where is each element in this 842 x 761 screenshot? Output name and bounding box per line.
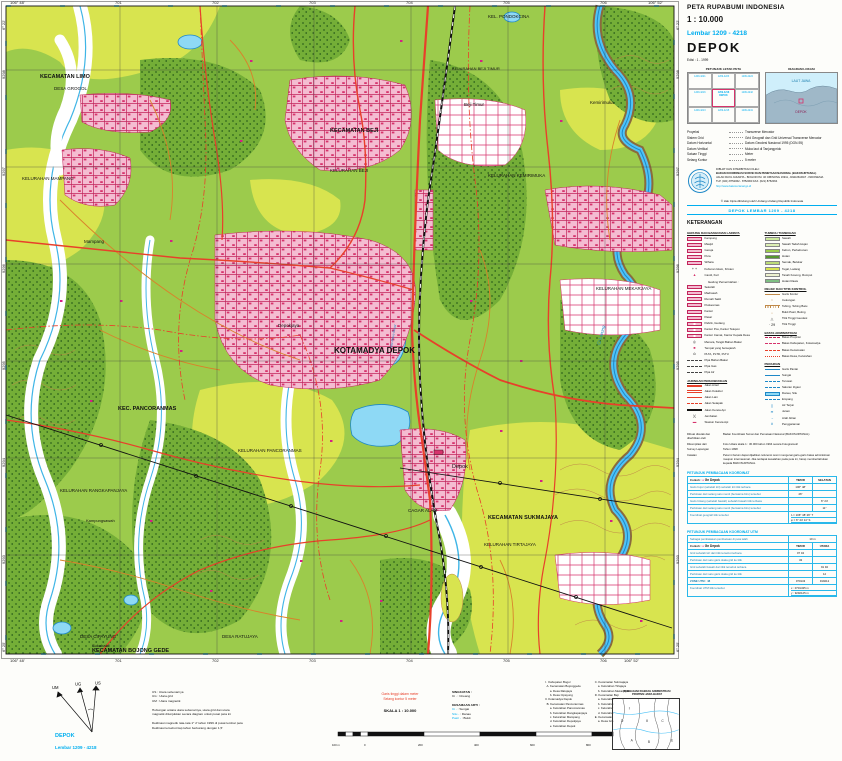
- source-note-label: Catatan: [687, 453, 723, 465]
- us-label: US: [95, 681, 101, 686]
- row-label: Grid sebelah bawah dari titik tersebut t…: [688, 564, 788, 570]
- locator-cell-number: 1209-4224: [736, 76, 758, 79]
- map-label: KELURAHAN RANGKAPANJAYA: [60, 488, 127, 493]
- projection-label: Proyeksi: [687, 130, 729, 134]
- legend-symbol: [765, 381, 780, 382]
- projection-value: Datum Geodesi Nasional 1995 (DGN-95): [745, 141, 837, 145]
- projection-label: Datum Vertikal: [687, 147, 729, 151]
- legend-symbol: ○: [765, 298, 780, 302]
- legend-symbol: ▬: [687, 420, 702, 424]
- grid-easting-top: 703: [309, 0, 316, 5]
- grid-northing-left: 9298: [1, 70, 6, 79]
- legend-symbol: [687, 366, 702, 367]
- projection-row: Selang Kontur5 meter: [687, 158, 837, 162]
- legend-symbol: [765, 255, 780, 259]
- legend-label: Tebing, Tebing Batu: [782, 305, 807, 308]
- legend-label: Kantor Pos, Kantor Telepon: [705, 328, 740, 331]
- legend-label: Batas Desa, Kelurahan: [782, 355, 812, 358]
- legend-symbol: [687, 328, 702, 332]
- map-label: Kemirimuka: [590, 100, 614, 105]
- legend-symbol: [687, 409, 702, 411]
- map-label: KECAMATAN LIMO: [40, 74, 91, 80]
- legend-label: Wihara: [705, 261, 714, 264]
- legend-label: Pipa Bahan Bakar: [705, 359, 728, 362]
- grid-easting-top: 702: [212, 0, 219, 5]
- sheet-locator: PETUNJUK LETAK PETA 1209-42211209-422312…: [687, 67, 760, 124]
- map-scale: 1 : 10.000: [687, 15, 837, 24]
- projection-row: Sistem GridGrid Geografi dan Grid Univer…: [687, 136, 837, 140]
- source-note-value: Peta ini belum dapat dijadikan referensi…: [723, 453, 837, 465]
- utm-table-title: PETUNJUK PEMBACAAN KOORDINAT UTM: [687, 530, 837, 534]
- legend-symbol: + +: [687, 267, 702, 271]
- locator-cell-number: 1209-4223: [713, 76, 735, 79]
- map-label: KELURAHAN BEJI: [330, 168, 368, 173]
- value-second: 6° 24': [812, 498, 836, 504]
- source-note-value: Foto Udara skala 1 : 30.000 tahun 1994 s…: [723, 442, 837, 446]
- value-second: [812, 491, 836, 497]
- diagram-marker-label: DEPOK: [795, 110, 807, 114]
- publisher-url: http://www.bakosurtanal.go.id: [716, 185, 823, 189]
- legend-label: Titik Tinggi: [782, 323, 796, 326]
- locator-cell: 1209-4218DEPOK: [712, 89, 736, 108]
- legend-symbol: [765, 375, 780, 376]
- legend-symbol: [765, 267, 780, 271]
- legend-label: Terusan: [782, 380, 792, 383]
- example-value: Gn Depok: [705, 544, 720, 548]
- source-note-label: Survey Lapangan: [687, 447, 723, 451]
- kesamaan-meaning: Danau: [462, 712, 471, 716]
- map-label: KECAMATAN BOJONG GEDE: [92, 648, 169, 654]
- grid-easting-bottom: 703: [309, 658, 316, 663]
- grid-easting-bottom: 705: [503, 658, 510, 663]
- admin-col-1: I. Kabupaten Bogor A. Kecamatan Bojongge…: [545, 680, 587, 728]
- row-label: Perkiraan dari selang satu menit (berwar…: [688, 491, 788, 497]
- corner-lon: 106° 48': [10, 0, 25, 5]
- grid-northing-right: 9294: [675, 458, 680, 467]
- table-row: Perkiraan dari satu garis skala grid ke …: [688, 556, 836, 563]
- locator-cell-number: 1209-4242: [736, 92, 758, 95]
- grid-northing-left: 9296: [1, 264, 6, 273]
- value-timur: 26": [788, 491, 812, 497]
- legend-label: Jalan Arteri: [705, 384, 719, 387]
- source-note-label: Dibuat dicetak dan diterbitkan oleh: [687, 432, 723, 440]
- legend-label: Garis Pantai: [782, 368, 798, 371]
- zone-label: ZONE UTM : 48: [688, 578, 788, 584]
- map-label: KELURAHAN MAMPANG: [22, 176, 74, 181]
- sea-label: LAUT JAWA: [792, 79, 811, 83]
- legend-symbol: [765, 273, 780, 277]
- legend-symbol: [687, 310, 702, 314]
- legend-label: Semak, Belukar: [782, 261, 802, 264]
- legend-column-right: TUMBUH TUMBUHANSawahSawah Tadah HujanKeb…: [765, 228, 838, 427]
- projection-row: Datum VertikalMuka laut di Tanjungpriok: [687, 147, 837, 151]
- legend-label: Jalan Lain: [705, 396, 718, 399]
- publisher-block: DIBUAT DAN DITERBITKAN OLEH :BADAN KOORD…: [687, 168, 837, 194]
- abbr-meaning: Cireang: [459, 694, 470, 698]
- legend-symbol: [687, 237, 702, 241]
- corner-lat: 6° 25': [1, 642, 6, 652]
- legend-item: Batas Desa, Kelurahan: [765, 353, 838, 359]
- locator-cell-number: 1209-4221: [689, 76, 711, 79]
- legend-symbol: [687, 316, 702, 320]
- legend: GEDUNG DAN BANGUNAN LAINNYAKampungMasjid…: [687, 228, 837, 427]
- locator-cell: 1209-4242: [735, 89, 759, 108]
- coord-table: Contoh : ● Gn DepokTIMURSELATANGaris buj…: [687, 476, 837, 524]
- source-note-label: Dikompilasi dari: [687, 442, 723, 446]
- locator-cell: 1209-4216: [688, 89, 712, 108]
- legend-label: Jeram: [782, 410, 790, 413]
- legend-label: Stasiun Kereta Api: [705, 421, 729, 424]
- grid-northing-left: 9293: [1, 555, 6, 564]
- map-label: Mampang: [84, 239, 105, 244]
- legend-symbol: [687, 261, 702, 265]
- dotted-leader: [729, 147, 743, 150]
- grid-northing-left: 9295: [1, 361, 6, 370]
- zone-timur: 070143: [788, 578, 812, 584]
- map-label: Depokjaya: [278, 323, 300, 328]
- legend-symbol: [687, 322, 702, 326]
- footer-value: φ = 6° 24' 11" S: [791, 518, 836, 523]
- legend-symbol: [765, 337, 780, 338]
- locator-cell: 1209-4223: [712, 73, 736, 89]
- footer-label: Koordinat geografi titik tersebut: [688, 512, 788, 523]
- table-example: Contoh : ● Gn Depok: [688, 543, 788, 549]
- map-label: KEL. PONDOKCINA: [488, 14, 529, 19]
- dotted-leader: [729, 141, 743, 144]
- legend-symbol: )(: [687, 414, 702, 418]
- legend-symbol: #: [765, 422, 780, 426]
- projection-label: Satuan Tinggi: [687, 152, 729, 156]
- projection-info: ProyeksiTransverse MercatorSistem GridGr…: [687, 130, 837, 162]
- projection-row: Datum HorizontalDatum Geodesi Nasional 1…: [687, 141, 837, 145]
- col-header: TIMUR: [788, 543, 812, 549]
- legend-symbol: [765, 279, 780, 283]
- legend-symbol: [765, 305, 780, 308]
- legend-label: Bukit Pasir, Beting: [782, 311, 805, 314]
- legend-label: Jalan Kereta Api: [705, 409, 726, 412]
- table-footer-row: Koordinat geografi titik tersebutλ = 106…: [688, 511, 836, 523]
- legend-symbol: [765, 356, 780, 357]
- footer-value: y : 9292125 m: [791, 591, 836, 596]
- grid-easting-top: 704: [406, 0, 413, 5]
- legend-symbol: [687, 360, 702, 361]
- legend-symbol: ■: [687, 346, 702, 350]
- admin-list-line: a. Kelurahan Pancoranmas: [545, 706, 587, 710]
- corner-lat: 6° 25': [675, 642, 680, 652]
- marginalia-panel: PETA RUPABUMI INDONESIA 1 : 10.000 Lemba…: [684, 2, 840, 759]
- locator-cell-number: 1209-4215: [713, 110, 735, 113]
- legend-symbol: [687, 249, 702, 253]
- diagram-title: DIAGRAM LOKASI: [765, 67, 838, 71]
- svg-text:I: I: [629, 706, 630, 710]
- legend-label: Garis Kontur: [782, 293, 798, 296]
- map-label: KEC. PANCORANMAS: [118, 406, 177, 412]
- index-maps: PETUNJUK LETAK PETA 1209-42211209-422312…: [687, 67, 837, 124]
- corner-lon: 106° 52': [648, 0, 663, 5]
- locator-cell-number: 1209-4213: [689, 110, 711, 113]
- projection-row: ProyeksiTransverse Mercator: [687, 130, 837, 134]
- legend-label: Candi, Kuil: [705, 274, 719, 277]
- legend-symbol: [765, 399, 780, 400]
- legend-label: Jembatan: [705, 415, 718, 418]
- legend-symbol: [687, 291, 702, 295]
- value-second: 12: [812, 571, 836, 577]
- coord-table-title: PETUNJUK PEMBACAAN KOORDINAT: [687, 471, 837, 475]
- legend-label: Kebun, Perkebunan: [782, 249, 808, 252]
- legend-symbol: ∴: [765, 311, 780, 315]
- legend-label: Empang: [782, 398, 793, 401]
- value-second: 91 92: [812, 564, 836, 570]
- legend-label: Sawah Tadah Hujan: [782, 243, 808, 246]
- legend-item: Hutan Rawa: [765, 278, 838, 284]
- legend-label: Pabrik, Gudang: [705, 322, 725, 325]
- map-label: Depok: [452, 464, 468, 470]
- legend-symbol: ◎: [687, 340, 702, 344]
- legend-label: Tegal, Ladang: [782, 268, 800, 271]
- map-label: DESA CIPAYUNG: [80, 634, 117, 639]
- legend-label: Rumah Sakit: [705, 298, 722, 301]
- projection-value: Muka laut di Tanjungpriok: [745, 147, 837, 151]
- scale-bar-label: 100 m: [332, 743, 340, 747]
- legend-label: Arah Aliran: [782, 417, 796, 420]
- legend-symbol: [687, 372, 702, 373]
- locator-cell: 1209-4215: [712, 107, 736, 123]
- scale-bar-label: 600: [530, 743, 535, 747]
- source-note-row: Dibuat dicetak dan diterbitkan olehBadan…: [687, 432, 837, 440]
- row-label: Perkiraan dari satu garis skala grid ke …: [688, 557, 788, 563]
- legend-label: Sawah: [782, 237, 791, 240]
- grid-easting-bottom: 702: [212, 658, 219, 663]
- corner-lon: 106° 48': [10, 658, 25, 663]
- legend-label: Titik Tinggi Geodesi: [782, 317, 807, 320]
- legend-symbol: △: [765, 317, 780, 321]
- legend-label: Menara, Tangki Bahan Bakar: [705, 341, 742, 344]
- legend-symbol: [687, 334, 702, 338]
- legend-column-left: GEDUNG DAN BANGUNAN LAINNYAKampungMasjid…: [687, 228, 760, 427]
- grid-easting-top: 701: [115, 0, 122, 5]
- table-row: Grid sebelah kiri dari titik tersebut te…: [688, 549, 836, 556]
- legend-label: Masjid: [705, 243, 713, 246]
- legend-symbol: [765, 261, 780, 265]
- edition: Edisi : 1 - 1999: [687, 58, 837, 62]
- publisher-line: TLP. (021) 8752062 - 8752063 FAX. (021) …: [716, 180, 823, 184]
- legend-label: Penggaraman: [782, 423, 800, 426]
- admin-list-line: e. Kelurahan Depok: [545, 724, 587, 728]
- map-label: Kampungsawah: [86, 518, 115, 523]
- legend-symbol: ∥: [765, 404, 780, 408]
- legend-label: Pura: [705, 255, 711, 258]
- grid-easting-bottom: 706: [600, 658, 607, 663]
- scale-bar-label: 0: [364, 743, 366, 747]
- publisher-lines: DIBUAT DAN DITERBITKAN OLEH :BADAN KOORD…: [716, 168, 823, 194]
- locator-cell: 1209-4221: [688, 73, 712, 89]
- projection-label: Sistem Grid: [687, 136, 729, 140]
- legend-label: Sungai: [782, 374, 791, 377]
- value-second: [812, 484, 836, 490]
- projection-row: Satuan TinggiMeter: [687, 152, 837, 156]
- legend-title: KETERANGAN: [687, 220, 837, 226]
- note-value: 10 m: [788, 536, 836, 542]
- legend-symbol: [687, 255, 702, 259]
- contour-note: Garis tinggi dalam meterSelang kontur 5 …: [340, 692, 460, 714]
- value-timur: [788, 505, 812, 511]
- table-row: Grid sebelah bawah dari titik tersebut t…: [688, 563, 836, 570]
- legend-label: PLTA, PLTD, PLTU: [705, 353, 729, 356]
- footer-values: λ = 106° 48' 26" Tφ = 6° 24' 11" S: [788, 512, 836, 523]
- corner-lon: 106° 52': [624, 658, 639, 663]
- legend-symbol: [687, 403, 702, 404]
- legend-symbol: →: [765, 416, 780, 420]
- map-label: KELURAHAN KEMIRIMUKA: [488, 173, 545, 178]
- legend-symbol: [765, 249, 780, 253]
- sheet-number: Lembar 1209 - 4218: [687, 30, 837, 37]
- source-note-value: Badan Koordinasi Survei dan Pemetaan Nas…: [723, 432, 837, 440]
- legend-label: Jalan Kolektor: [705, 390, 723, 393]
- col-header: UTARA: [812, 543, 836, 549]
- projection-value: Transverse Mercator: [745, 130, 837, 134]
- abbreviations: SINGKATAN : Ci . : Cireang KESAMAAN ARTI…: [452, 690, 542, 721]
- grid-northing-left: 9294: [1, 458, 6, 467]
- kesamaan-row: Pasir - : Bukit: [452, 716, 542, 720]
- footer-sheet-name: DEPOK: [55, 733, 75, 739]
- zone-row: ZONE UTM : 48070143919212: [688, 577, 836, 584]
- locator-cell-name: DEPOK: [713, 95, 735, 98]
- value-second: [812, 550, 836, 556]
- legend-label: Saluran Irigasi: [782, 386, 800, 389]
- legend-symbol: [687, 397, 702, 398]
- map-label: KELURAHAN BEJI TIMUR: [452, 66, 500, 71]
- row-label: Garis lintang (sebelah bawah) sebelah ba…: [688, 498, 788, 504]
- locator-grid: 1209-42211209-42231209-42241209-42161209…: [687, 72, 760, 124]
- source-notes: Dibuat dicetak dan diterbitkan olehBadan…: [687, 432, 837, 465]
- legend-symbol: [687, 303, 702, 307]
- legend-symbol: ⊙: [687, 352, 702, 356]
- legend-symbol: [687, 243, 702, 247]
- legend-label: Madrasah: [705, 292, 718, 295]
- legend-symbol: [687, 385, 702, 387]
- value-timur: 07 04: [788, 550, 812, 556]
- scale-bar-label: 400: [474, 743, 479, 747]
- admin-inset: PEMBAGIAN DAERAH ADMINISTRASIPROPINSI JA…: [612, 690, 682, 750]
- locator-cell: 1209-4241: [735, 107, 759, 123]
- legend-label: Jalan Setapak: [705, 402, 723, 405]
- legend-symbol: [687, 297, 702, 301]
- map-canvas: KECAMATAN LIMODESA GROGOLKELURAHAN MAMPA…: [0, 0, 680, 660]
- north-notes: US : Utara sebenarnyaUG : Utara gridUM :…: [152, 690, 330, 730]
- legend-item: · 29Titik Tinggi: [765, 322, 838, 328]
- sheet-banner: DEPOK LEMBAR 1209 - 4218: [687, 205, 837, 215]
- legend-symbol: [765, 243, 780, 247]
- ug-label: UG: [75, 682, 81, 687]
- map-label: Beji Timur: [464, 102, 485, 107]
- dotted-leader: [729, 130, 743, 133]
- dotted-leader: [729, 152, 743, 155]
- locator-title: PETUNJUK LETAK PETA: [687, 67, 760, 71]
- topographic-map: KECAMATAN LIMODESA GROGOLKELURAHAN MAMPA…: [0, 0, 680, 660]
- legend-symbol: [687, 390, 702, 392]
- declination-diagram: UM UG US: [30, 680, 140, 738]
- map-label: KECAMATAN BEJI: [330, 128, 379, 134]
- footer-values: x : 0701435 my : 9292125 m: [788, 585, 836, 596]
- admin-inset-title-line: PROPINSI JAWA BARAT: [612, 693, 682, 696]
- scale-bar-label: 800: [586, 743, 591, 747]
- projection-value: Grid Geografi dan Grid Universal Transve…: [745, 136, 837, 140]
- north-note-line: Deklinasi tersebut tiap tahun berkurang …: [152, 726, 330, 730]
- row-label: Garis bujur (sebelah kiri) sebelah kiri …: [688, 484, 788, 490]
- value-timur: [788, 571, 812, 577]
- legend-label: Tanah Kosong, Rumput: [782, 274, 812, 277]
- table-footer-row: Koordinat UTM titik tersebutx : 0701435 …: [688, 584, 836, 596]
- svg-text:B: B: [648, 740, 650, 744]
- grid-northing-right: 9298: [675, 70, 680, 79]
- col-header: SELATAN: [812, 477, 836, 483]
- legend-symbol: [765, 387, 780, 388]
- kesamaan-meaning: Bukit: [464, 716, 471, 720]
- footer-label: Koordinat UTM titik tersebut: [688, 585, 788, 596]
- bakosurtanal-logo: [687, 168, 713, 194]
- value-second: [812, 557, 836, 563]
- table-row: Perkiraan dari selang satu menit (berwar…: [688, 490, 836, 497]
- grid-easting-bottom: 704: [406, 658, 413, 663]
- grid-northing-right: 9297: [675, 167, 680, 176]
- um-label: UM: [52, 685, 59, 690]
- example-label: Contoh :: [690, 478, 702, 482]
- map-label: KELURAHAN TIRTAJAYA: [484, 542, 536, 547]
- grid-northing-right: 9295: [675, 361, 680, 370]
- legend-item: Pipa Air: [687, 369, 760, 375]
- legend-label: Kantor Camat, Kantor Kepala Desa: [705, 334, 750, 337]
- row-label: Perkiraan dari satu garis skala grid ke …: [688, 571, 788, 577]
- row-label: Grid sebelah kiri dari titik tersebut te…: [688, 550, 788, 556]
- locator-cell-number: 1209-4241: [736, 110, 758, 113]
- footer-sheet-number: Lembar 1209 - 4218: [55, 745, 97, 750]
- legend-label: Batas Kecamatan: [782, 349, 805, 352]
- map-label: CAGAR ALAM: [408, 508, 438, 513]
- grid-northing-right: 9293: [675, 555, 680, 564]
- source-note-value: Tahun 1998: [723, 447, 837, 451]
- grid-northing-right: 9296: [675, 264, 680, 273]
- legend-label: Hutan Rawa: [782, 280, 798, 283]
- map-label: DESA RATUJAYA: [222, 634, 258, 639]
- value-timur: 43: [788, 557, 812, 563]
- legend-label: Sekolah: [705, 286, 715, 289]
- source-note-row: Dikompilasi dariFoto Udara skala 1 : 30.…: [687, 442, 837, 446]
- projection-label: Datum Horizontal: [687, 141, 729, 145]
- series-title: PETA RUPABUMI INDONESIA: [687, 4, 837, 11]
- legend-symbol: ▲: [687, 273, 702, 277]
- kesamaan-meaning: Sungai: [459, 707, 469, 711]
- legend-symbol: [765, 350, 780, 351]
- legend-label: Pasar: [705, 316, 713, 319]
- example-value: Gn Depok: [705, 478, 720, 482]
- legend-symbol: [687, 285, 702, 289]
- legend-label: Hutan: [782, 255, 790, 258]
- sheet-name: DEPOK: [687, 40, 837, 55]
- singkatan-row: Ci . : Cireang: [452, 694, 542, 698]
- value-timur: 106° 48': [788, 484, 812, 490]
- projection-value: Meter: [745, 152, 837, 156]
- map-label: DESA GROGOL: [54, 86, 88, 91]
- value-second: 11": [812, 505, 836, 511]
- row-label: Perkiraan dari selang satu menit (berwar…: [688, 505, 788, 511]
- table-header-row: Contoh : ● Gn DepokTIMURUTARA: [688, 542, 836, 549]
- kesamaan-term: Pasir -: [452, 716, 461, 720]
- map-label: KELURAHAN MEKARJAYA: [596, 286, 651, 291]
- locator-cell: 1209-4224: [735, 73, 759, 89]
- grid-easting-top: 706: [600, 0, 607, 5]
- legend-label: Batas Propinsi: [782, 336, 801, 339]
- legend-item: ▲Candi, Kuil: [687, 272, 760, 278]
